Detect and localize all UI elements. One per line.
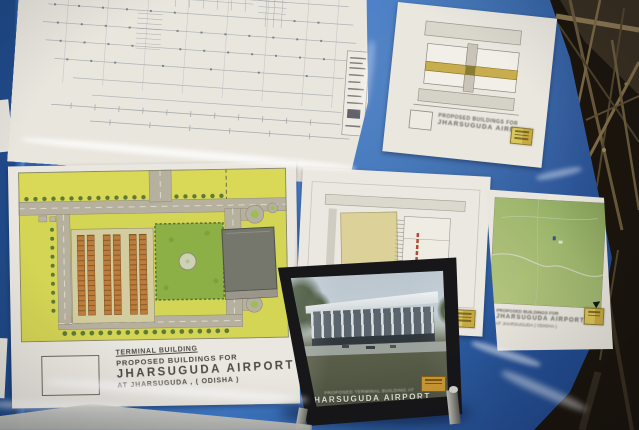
section-drawing-sheet: PROPOSED BUILDINGS FOR JHARSUGUDA AIRPOR… — [382, 2, 557, 168]
title-block-stamp — [347, 109, 361, 119]
map-marker — [553, 236, 556, 240]
approval-stamp — [510, 127, 534, 146]
photo-content: PROPOSED BUILDINGS FOR JHARSUGUDA AIRPOR… — [0, 0, 639, 430]
caption-line: JHARSUGUDA AIRPORT — [284, 391, 455, 406]
approval-stamp — [584, 307, 605, 325]
site-plan-sheet: TERMINAL BUILDING PROPOSED BUILDINGS FOR… — [8, 162, 300, 409]
legend-box — [409, 110, 433, 130]
map-title-block: PROPOSED BUILDINGS FOR JHARSUGUDA AIRPOR… — [496, 308, 583, 331]
terminal-building-block — [222, 227, 278, 300]
rendering-picture: PROPOSED TERMINAL BUILDING AT JHARSUGUDA… — [284, 265, 455, 411]
blueprint-linework — [7, 0, 377, 186]
legend-box — [41, 355, 100, 396]
frame-clip-knob — [449, 386, 458, 393]
photo-of-site-notice-board: PROPOSED BUILDINGS FOR JHARSUGUDA AIRPOR… — [0, 0, 639, 430]
site-plan-title: TERMINAL BUILDING PROPOSED BUILDINGS FOR… — [115, 340, 295, 391]
site-plan-title-block: TERMINAL BUILDING PROPOSED BUILDINGS FOR… — [21, 342, 290, 403]
blueprint-floor-plan-sheet — [7, 0, 377, 186]
approval-stamp — [421, 376, 446, 392]
location-map-drawing — [489, 197, 606, 309]
site-plan-drawing — [18, 168, 289, 343]
